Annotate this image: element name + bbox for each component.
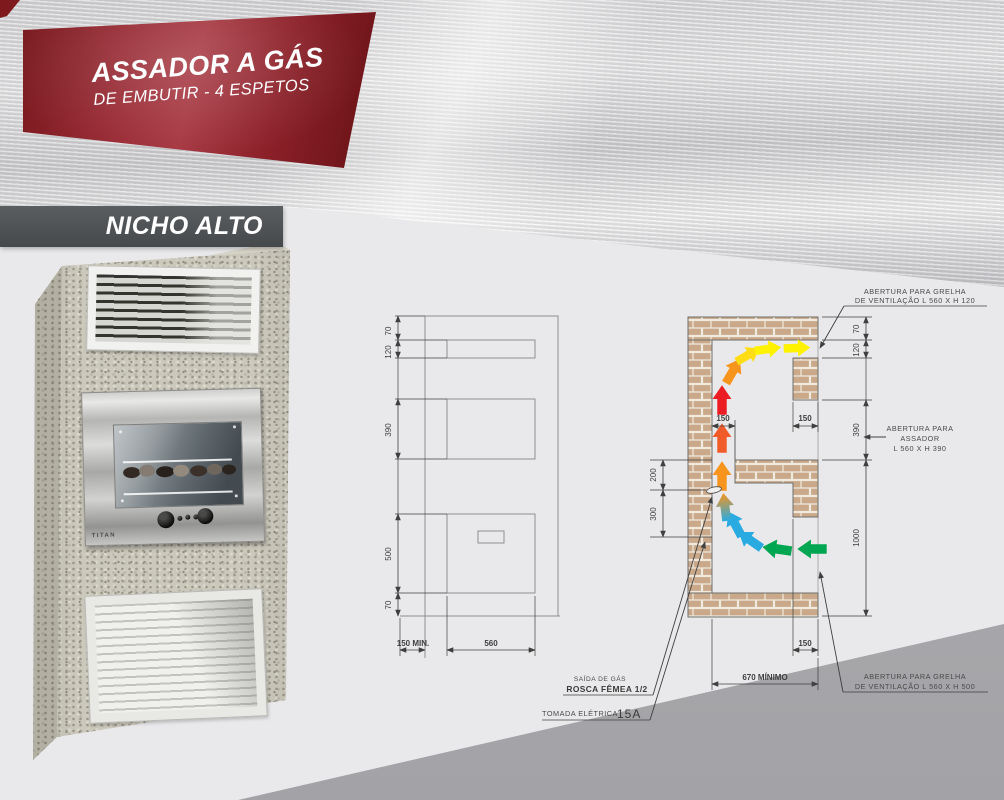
dimension-label: 150 MIN. <box>397 639 429 648</box>
dimension-label: 120 <box>852 343 861 357</box>
dimension-label: 300 <box>649 507 658 521</box>
front-elevation: 70 120 390 500 70 150 MIN. 560 <box>384 316 560 658</box>
flow-arrow-exhaust <box>783 339 810 357</box>
annotation-text: DE VENTILAÇÃO L 560 X H 500 <box>855 682 975 691</box>
flow-arrow-warm <box>713 423 732 452</box>
outlet-box <box>478 531 504 543</box>
flow-arrow-intake <box>797 540 826 559</box>
annotation-socket: TOMADA ELÉTRICA 15A <box>542 542 705 721</box>
dimension-label: 70 <box>384 326 393 335</box>
flow-arrow-exhaust <box>754 339 783 360</box>
dimension-label: 70 <box>852 324 861 333</box>
annotation-text: DE VENTILAÇÃO L 560 X H 120 <box>855 296 975 305</box>
dimension-label: 120 <box>384 345 393 359</box>
flow-arrow-intake <box>761 538 793 561</box>
dimension-label: 670 MÍNIMO <box>742 673 787 682</box>
annotation-text: ROSCA FÊMEA 1/2 <box>566 683 647 694</box>
front-roaster-opening <box>447 399 535 459</box>
dimension-label: 1000 <box>852 529 861 547</box>
page: TITAN ASSADOR A GÁS DE EMBUTIR - 4 ESPET… <box>0 0 1004 800</box>
front-vent-bottom-opening <box>447 514 535 593</box>
annotation-vent-top: ABERTURA PARA GRELHA DE VENTILAÇÃO L 560… <box>820 287 987 348</box>
side-section: 70 120 390 1000 200 300 150 150 <box>542 287 988 721</box>
annotation-text: 15A <box>617 707 641 721</box>
side-dimensions-right: 70 120 390 1000 <box>822 317 872 616</box>
flow-arrow-hot <box>713 385 732 414</box>
dimension-label: 150 <box>798 639 812 648</box>
brick-bottom-band <box>688 593 818 617</box>
brick-left-wall <box>688 317 712 617</box>
front-vent-top-opening <box>447 340 535 358</box>
brick-middle-ell <box>735 460 818 517</box>
annotation-text: ABERTURA PARA <box>886 424 953 433</box>
technical-drawings: 70 120 390 500 70 150 MIN. 560 <box>0 0 1004 800</box>
annotation-vent-bottom: ABERTURA PARA GRELHA DE VENTILAÇÃO L 560… <box>820 572 988 692</box>
flow-arrow-warm <box>713 461 732 490</box>
dimension-label: 150 <box>716 414 730 423</box>
dimension-label: 200 <box>649 468 658 482</box>
dimension-label: 500 <box>384 547 393 561</box>
dimension-label: 70 <box>384 600 393 609</box>
annotation-text: ABERTURA PARA GRELHA <box>864 672 966 681</box>
brick-upper-block <box>793 358 818 400</box>
annotation-text: ASSADOR <box>900 434 939 443</box>
dimension-label: 390 <box>384 423 393 437</box>
dimension-label: 150 <box>798 414 812 423</box>
dimension-label: 560 <box>484 639 498 648</box>
brick-top-band <box>688 317 818 340</box>
annotation-text: L 560 X H 390 <box>894 444 947 453</box>
annotation-roaster: ABERTURA PARA ASSADOR L 560 X H 390 <box>864 424 954 453</box>
front-dimensions: 70 120 390 500 70 150 MIN. 560 <box>384 316 535 656</box>
annotation-text: SAÍDA DE GÁS <box>574 674 626 683</box>
dimension-label: 390 <box>852 423 861 437</box>
annotation-text: ABERTURA PARA GRELHA <box>864 287 966 296</box>
annotation-text: TOMADA ELÉTRICA <box>542 709 618 718</box>
